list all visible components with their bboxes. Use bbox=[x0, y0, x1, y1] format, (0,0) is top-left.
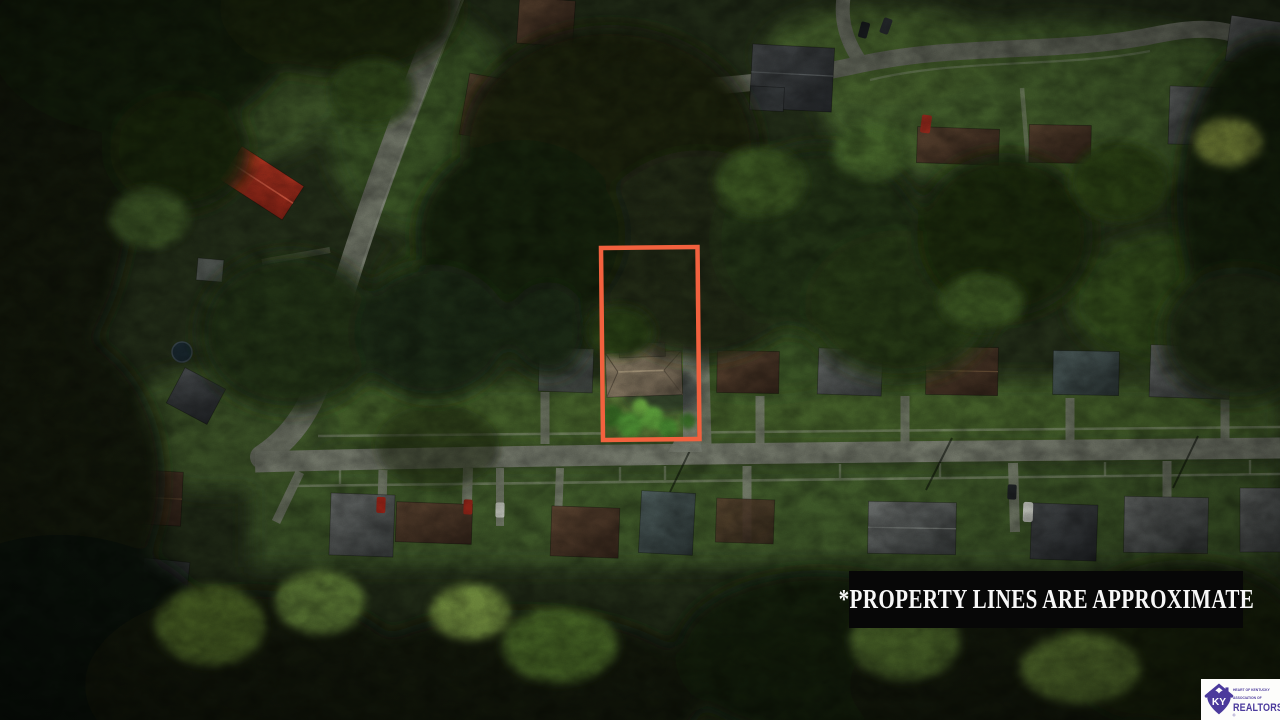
logo-org-line2: ASSOCIATION OF bbox=[1233, 696, 1270, 699]
logo-text: HEART OF KENTUCKY ASSOCIATION OF REALTOR… bbox=[1233, 686, 1280, 714]
realtor-logo: KY ® HEART OF KENTUCKY ASSOCIATION OF RE… bbox=[1201, 679, 1280, 720]
ky-heart-house-icon: KY ® bbox=[1202, 681, 1236, 718]
listing-photo-page: *PROPERTY LINES ARE APPROXIMATE KY ® HEA… bbox=[0, 0, 1280, 720]
registered-mark: ® bbox=[1233, 714, 1236, 718]
disclaimer-banner: *PROPERTY LINES ARE APPROXIMATE bbox=[849, 571, 1243, 628]
logo-org-name: REALTORS® bbox=[1233, 703, 1280, 714]
disclaimer-text: *PROPERTY LINES ARE APPROXIMATE bbox=[838, 584, 1254, 615]
logo-monogram: KY bbox=[1212, 697, 1226, 708]
logo-org-line1: HEART OF KENTUCKY bbox=[1233, 688, 1270, 691]
